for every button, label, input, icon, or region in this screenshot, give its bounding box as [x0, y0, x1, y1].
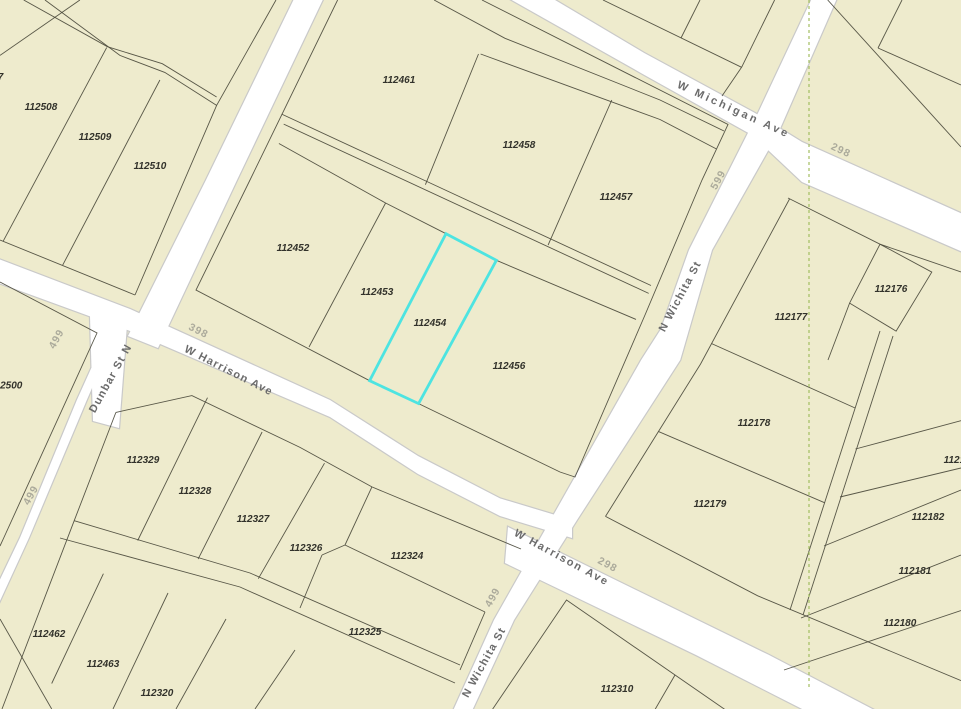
svg-text:112509: 112509 [79, 132, 112, 143]
svg-text:112180: 112180 [884, 618, 917, 629]
svg-text:112500: 112500 [0, 381, 23, 392]
svg-text:112452: 112452 [277, 243, 310, 254]
svg-text:112457: 112457 [600, 192, 633, 203]
svg-text:112320: 112320 [141, 688, 174, 699]
svg-text:112458: 112458 [503, 140, 536, 151]
svg-text:112326: 112326 [290, 543, 323, 554]
svg-text:112324: 112324 [391, 551, 424, 562]
svg-text:112179: 112179 [694, 499, 727, 510]
svg-text:112178: 112178 [738, 418, 771, 429]
svg-text:112463: 112463 [87, 659, 120, 670]
svg-text:112181: 112181 [899, 566, 932, 577]
svg-text:112453: 112453 [361, 287, 394, 298]
svg-text:112325: 112325 [349, 627, 382, 638]
svg-text:112510: 112510 [134, 161, 167, 172]
svg-text:112507: 112507 [0, 72, 4, 83]
svg-text:112182: 112182 [912, 512, 945, 523]
svg-text:112327: 112327 [237, 514, 270, 525]
svg-text:112176: 112176 [875, 284, 908, 295]
svg-text:112461: 112461 [383, 75, 416, 86]
svg-text:112183: 112183 [944, 455, 961, 466]
svg-text:112456: 112456 [493, 361, 526, 372]
svg-text:112454: 112454 [414, 318, 447, 329]
svg-text:112328: 112328 [179, 486, 212, 497]
svg-text:112177: 112177 [775, 312, 808, 323]
svg-text:112310: 112310 [601, 684, 634, 695]
svg-text:112462: 112462 [33, 629, 66, 640]
svg-text:112508: 112508 [25, 102, 58, 113]
svg-text:112329: 112329 [127, 455, 160, 466]
